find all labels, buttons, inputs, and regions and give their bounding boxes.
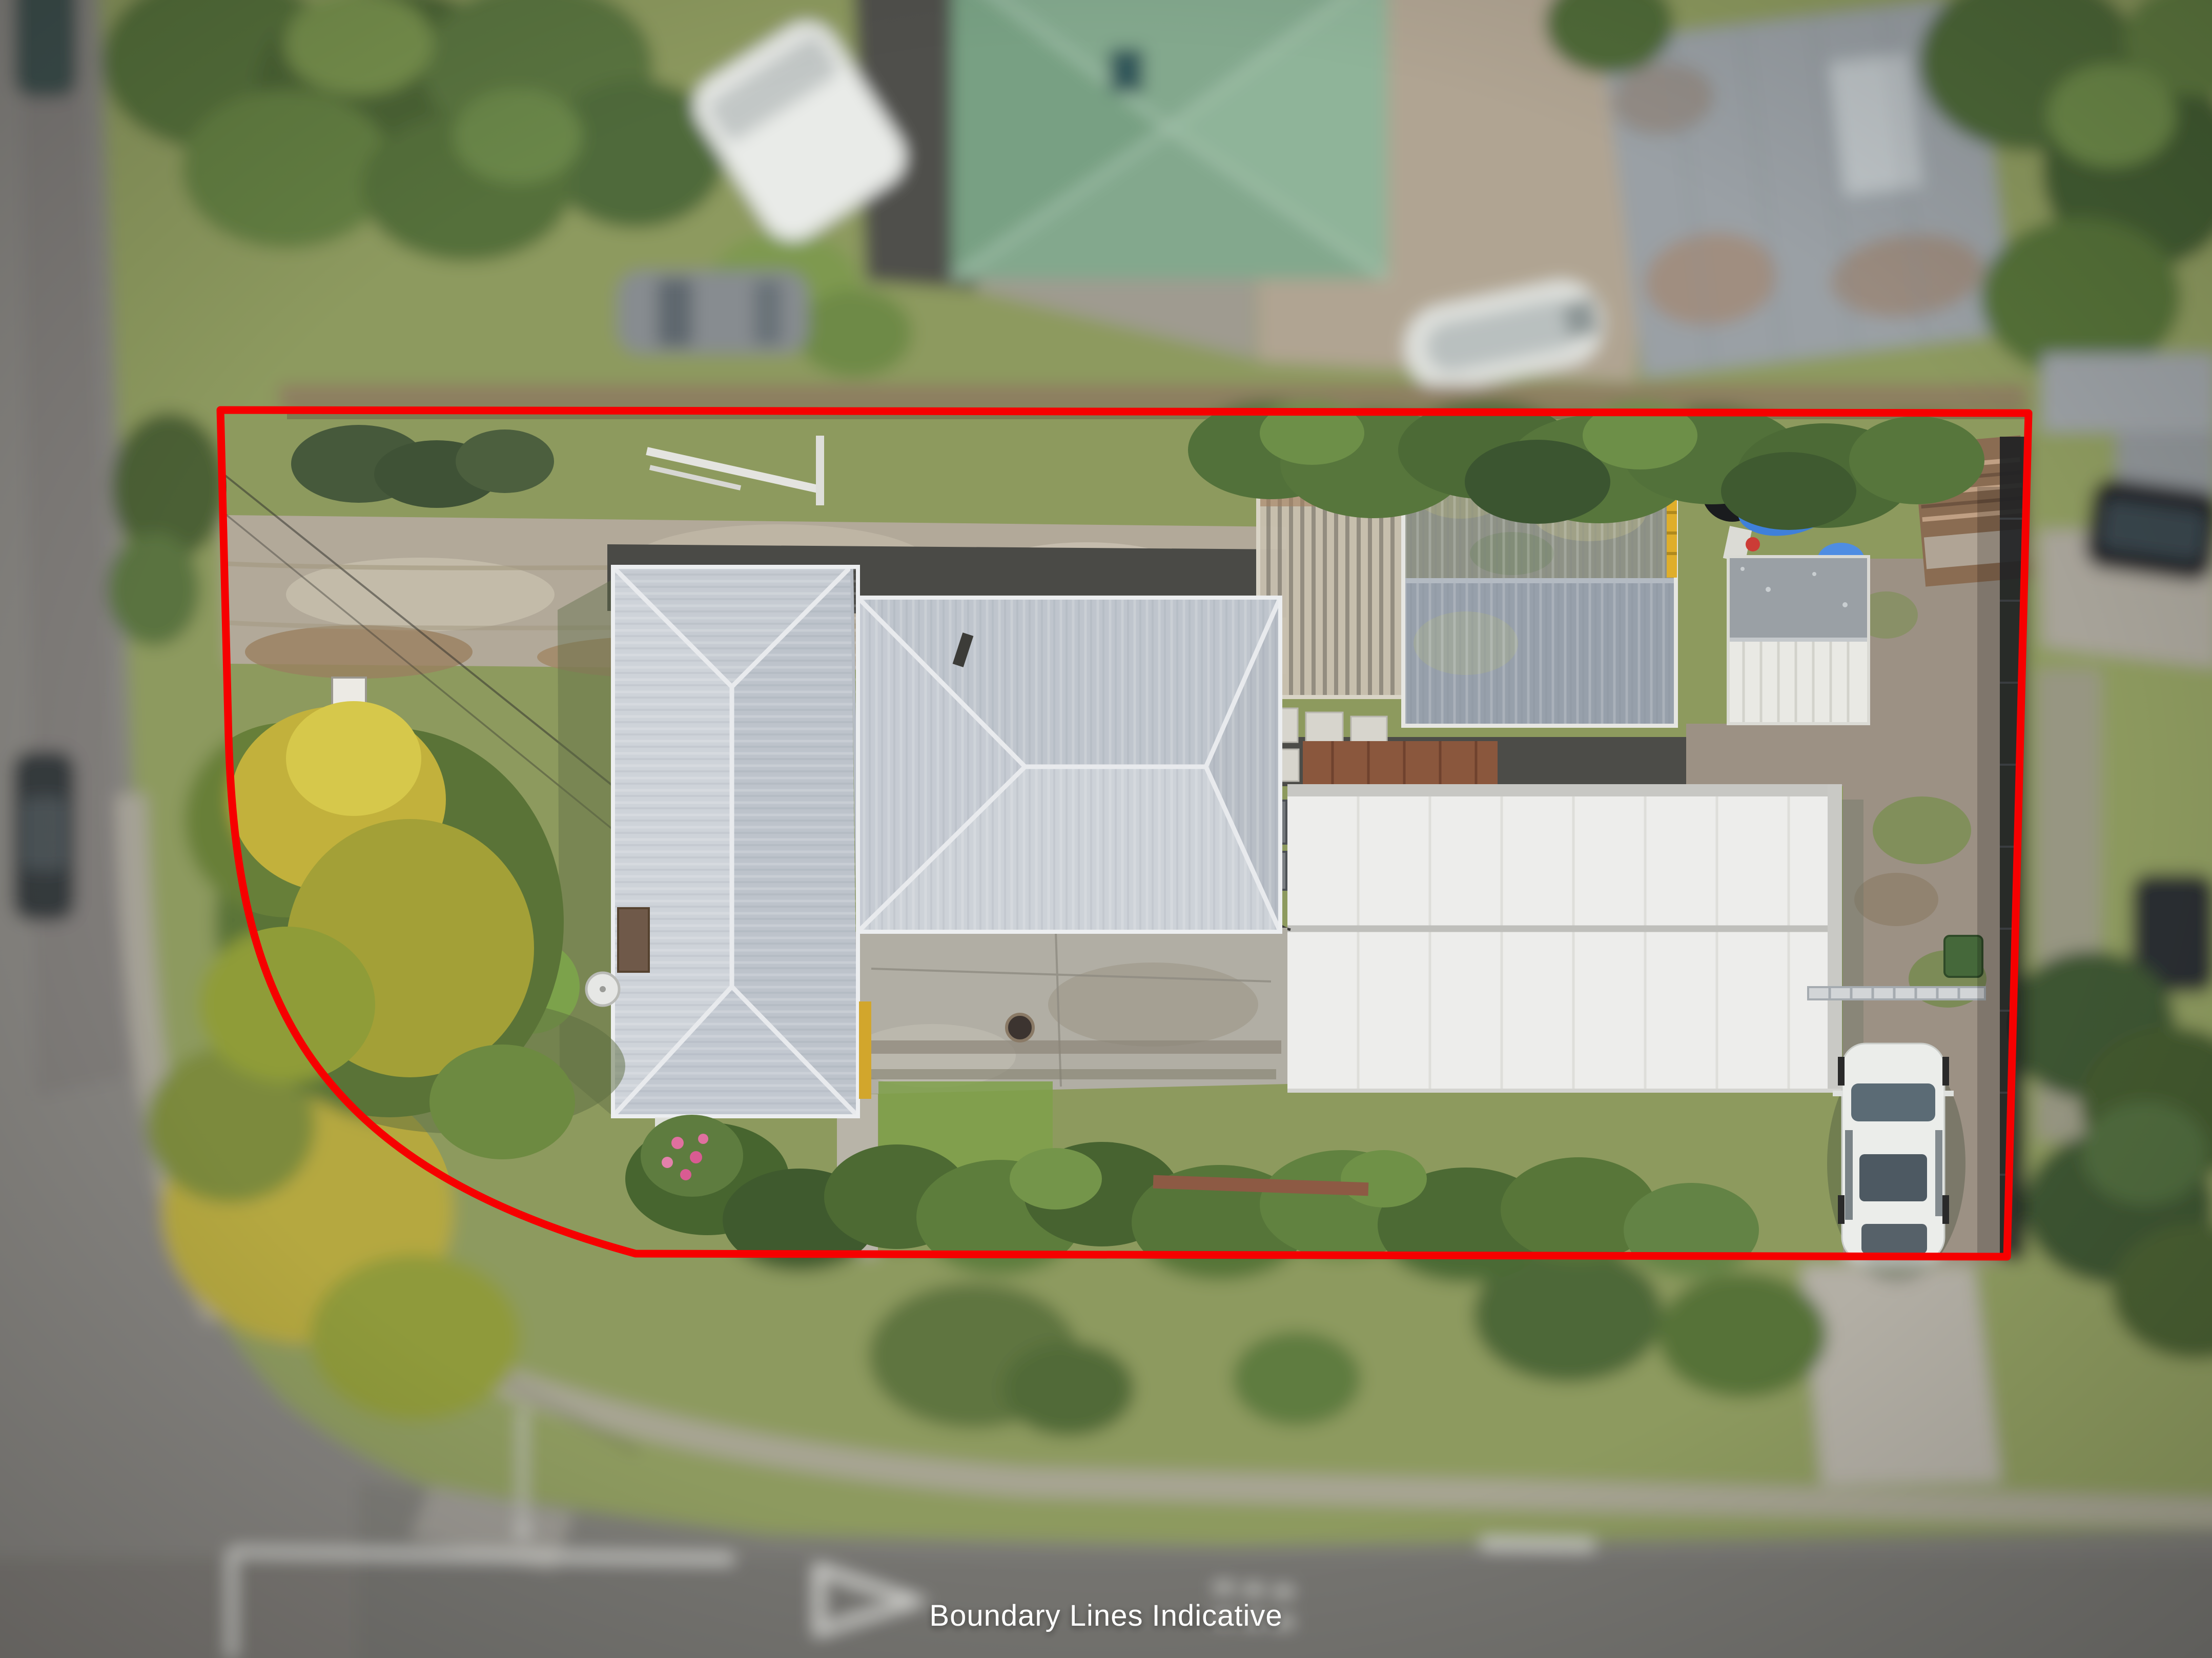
boundary-disclaimer-text: Boundary Lines Indicative	[929, 1599, 1282, 1632]
aerial-photo-stage: Boundary Lines Indicative	[0, 0, 2212, 1658]
aerial-photo: Boundary Lines Indicative	[0, 0, 2212, 1658]
